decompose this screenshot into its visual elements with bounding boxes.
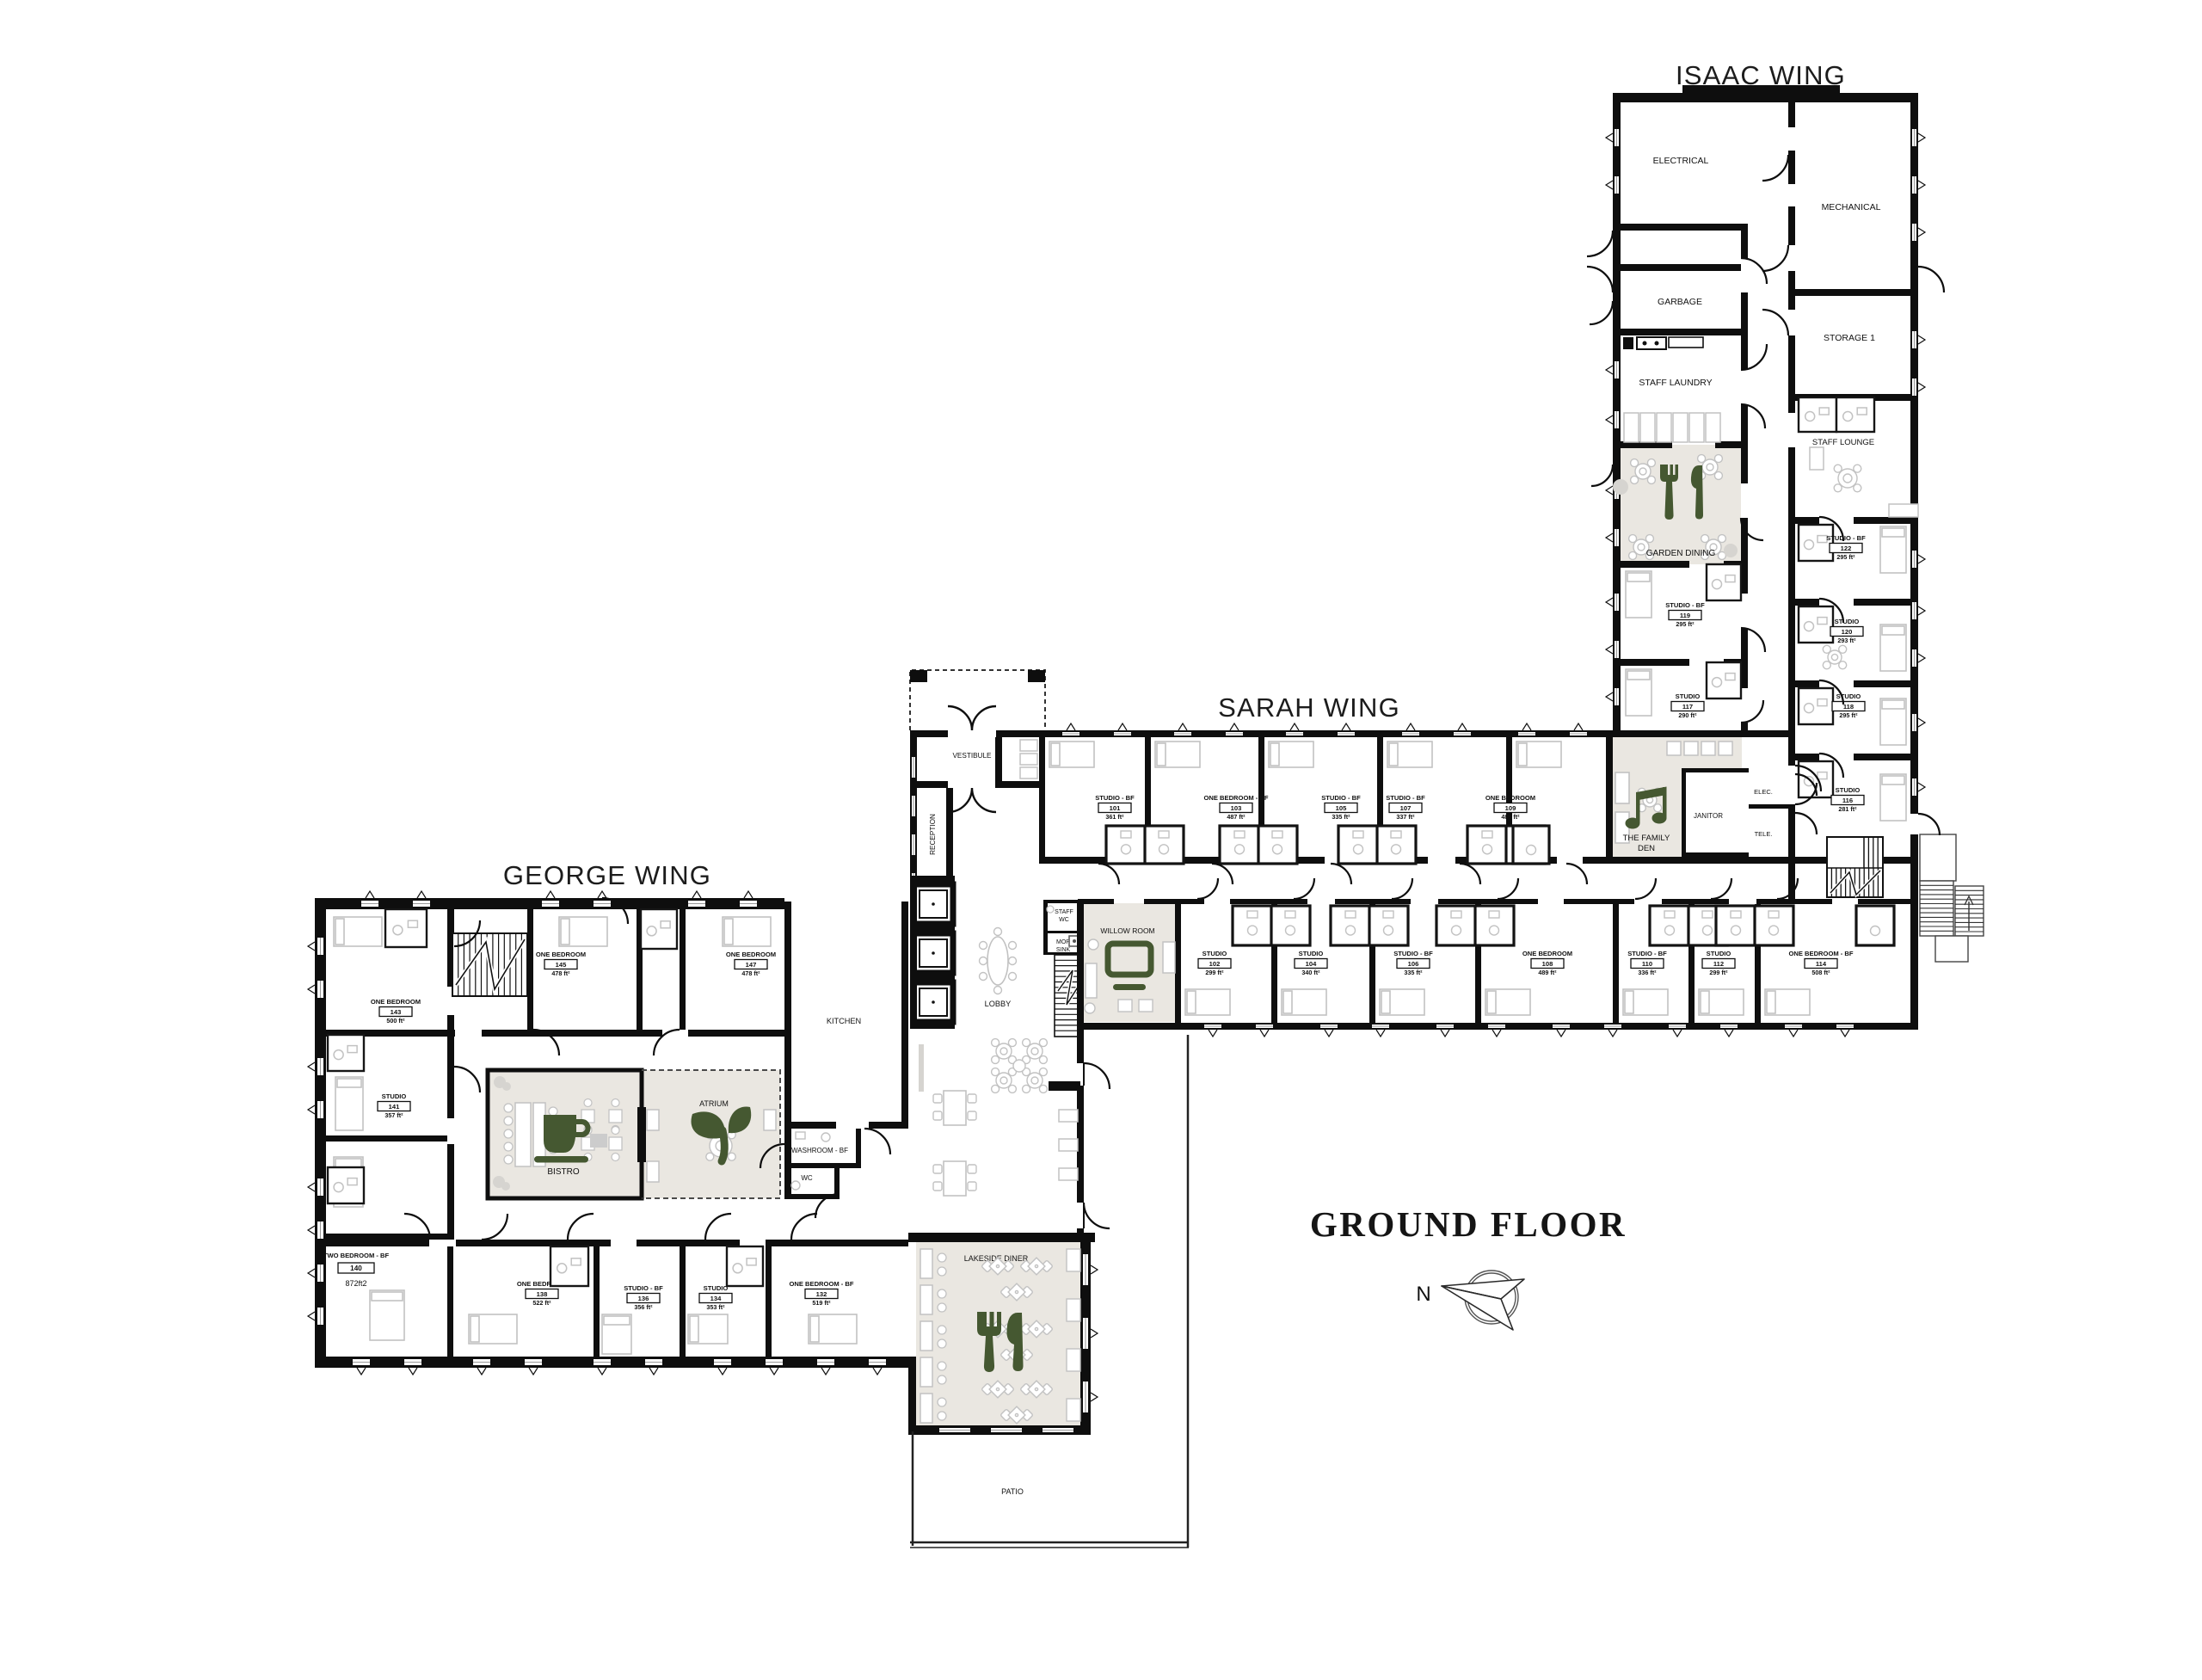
svg-text:STAFF LAUNDRY: STAFF LAUNDRY [1639,378,1712,388]
svg-text:508 ft²: 508 ft² [1811,969,1830,976]
svg-text:THE FAMILY: THE FAMILY [1623,834,1670,843]
svg-text:299 ft²: 299 ft² [1709,969,1728,976]
svg-text:LOBBY: LOBBY [985,1000,1012,1008]
svg-text:145: 145 [556,961,567,969]
svg-text:ELEC.: ELEC. [1754,788,1773,796]
svg-text:522 ft²: 522 ft² [532,1299,551,1307]
svg-text:STUDIO: STUDIO [1299,950,1324,957]
svg-text:478 ft²: 478 ft² [551,969,570,977]
svg-text:478 ft²: 478 ft² [741,969,760,977]
svg-text:101: 101 [1110,804,1121,812]
svg-text:SARAH WING: SARAH WING [1218,692,1400,723]
svg-text:108: 108 [1542,960,1553,968]
svg-text:295 ft²: 295 ft² [1839,711,1858,719]
svg-text:356 ft²: 356 ft² [634,1303,653,1311]
svg-text:STAFF LOUNGE: STAFF LOUNGE [1812,438,1874,447]
svg-text:STUDIO: STUDIO [704,1284,729,1292]
svg-text:299 ft²: 299 ft² [1205,969,1224,976]
svg-text:295 ft²: 295 ft² [1676,620,1695,628]
svg-text:STUDIO: STUDIO [382,1092,407,1100]
svg-text:STUDIO - BF: STUDIO - BF [1393,950,1433,957]
svg-text:489 ft²: 489 ft² [1538,969,1557,976]
svg-text:TELE.: TELE. [1755,830,1773,838]
svg-text:487 ft²: 487 ft² [1227,813,1246,821]
svg-text:353 ft²: 353 ft² [706,1303,725,1311]
svg-text:STAFF: STAFF [1055,909,1073,915]
svg-text:120: 120 [1842,628,1853,636]
svg-text:STUDIO - BF: STUDIO - BF [1095,794,1135,802]
svg-text:STUDIO: STUDIO [1707,950,1731,957]
svg-text:136: 136 [638,1295,649,1302]
svg-text:295 ft²: 295 ft² [1836,553,1855,561]
svg-text:ONE BEDROOM: ONE BEDROOM [726,951,776,958]
svg-text:STUDIO - BF: STUDIO - BF [1627,950,1667,957]
svg-text:872ft2: 872ft2 [345,1279,366,1288]
svg-text:STUDIO: STUDIO [1202,950,1227,957]
svg-text:293 ft²: 293 ft² [1837,637,1856,644]
svg-text:STUDIO: STUDIO [1836,786,1861,794]
svg-text:DEN: DEN [1638,844,1655,853]
svg-text:290 ft²: 290 ft² [1678,711,1697,719]
svg-text:STUDIO - BF: STUDIO - BF [1321,794,1361,802]
svg-text:118: 118 [1843,703,1854,711]
svg-text:ONE BEDROOM - BF: ONE BEDROOM - BF [1788,950,1853,957]
svg-text:112: 112 [1713,960,1724,968]
svg-text:KITCHEN: KITCHEN [827,1017,861,1025]
svg-text:116: 116 [1842,797,1853,804]
svg-text:SINK: SINK [1056,947,1071,953]
svg-text:GROUND FLOOR: GROUND FLOOR [1310,1204,1627,1244]
svg-text:109: 109 [1505,804,1516,812]
svg-text:335 ft²: 335 ft² [1404,969,1423,976]
svg-text:337 ft²: 337 ft² [1396,813,1415,821]
svg-text:114: 114 [1816,960,1827,968]
svg-text:357 ft²: 357 ft² [384,1111,403,1119]
svg-text:134: 134 [710,1295,722,1302]
svg-text:103: 103 [1231,804,1242,812]
svg-text:335 ft²: 335 ft² [1332,813,1350,821]
svg-text:122: 122 [1841,545,1852,552]
svg-text:ONE BEDROOM - BF: ONE BEDROOM - BF [789,1280,853,1288]
svg-text:STUDIO: STUDIO [1676,692,1701,700]
svg-text:STUDIO - BF: STUDIO - BF [1665,601,1705,609]
svg-text:STUDIO - BF: STUDIO - BF [1826,534,1866,542]
svg-text:JANITOR: JANITOR [1694,812,1723,820]
svg-text:STUDIO - BF: STUDIO - BF [624,1284,663,1292]
svg-text:119: 119 [1680,612,1690,619]
svg-text:N: N [1416,1283,1430,1306]
svg-text:141: 141 [389,1103,400,1111]
svg-text:ATRIUM: ATRIUM [699,1099,729,1108]
svg-text:WC: WC [1059,917,1069,923]
svg-text:WILLOW ROOM: WILLOW ROOM [1100,926,1154,935]
svg-text:106: 106 [1408,960,1419,968]
svg-text:RECEPTION: RECEPTION [929,814,937,855]
svg-text:ONE BEDROOM: ONE BEDROOM [1485,794,1535,802]
svg-text:102: 102 [1209,960,1221,968]
svg-text:138: 138 [537,1290,548,1298]
svg-text:VESTIBULE: VESTIBULE [952,752,992,760]
svg-text:TWO BEDROOM - BF: TWO BEDROOM - BF [323,1252,390,1259]
svg-text:143: 143 [391,1008,402,1016]
svg-text:ELECTRICAL: ELECTRICAL [1653,156,1709,166]
svg-text:104: 104 [1306,960,1317,968]
svg-text:500 ft²: 500 ft² [386,1017,405,1025]
svg-text:147: 147 [746,961,757,969]
svg-text:105: 105 [1336,804,1347,812]
svg-text:107: 107 [1400,804,1412,812]
svg-text:STORAGE 1: STORAGE 1 [1824,333,1875,343]
svg-text:GARDEN DINING: GARDEN DINING [1646,549,1716,558]
svg-text:336 ft²: 336 ft² [1638,969,1657,976]
svg-text:GARBAGE: GARBAGE [1658,297,1702,307]
svg-text:361 ft²: 361 ft² [1105,813,1124,821]
svg-text:ONE BEDROOM - BF: ONE BEDROOM - BF [1203,794,1268,802]
svg-text:MECHANICAL: MECHANICAL [1822,202,1881,212]
svg-text:281 ft²: 281 ft² [1838,805,1857,813]
svg-text:110: 110 [1642,960,1652,968]
svg-text:ONE BEDROOM: ONE BEDROOM [1522,950,1572,957]
svg-text:STUDIO: STUDIO [1835,618,1860,625]
svg-text:ONE BEDROOM: ONE BEDROOM [371,998,421,1006]
svg-text:ONE BEDROOM: ONE BEDROOM [536,951,586,958]
svg-text:BISTRO: BISTRO [547,1167,579,1177]
svg-text:PATIO: PATIO [1001,1487,1024,1496]
svg-text:140: 140 [350,1265,362,1272]
svg-text:WASHROOM - BF: WASHROOM - BF [791,1147,848,1154]
svg-text:STUDIO - BF: STUDIO - BF [1386,794,1425,802]
svg-text:GEORGE WING: GEORGE WING [503,860,711,890]
svg-text:132: 132 [816,1290,827,1298]
svg-text:340 ft²: 340 ft² [1301,969,1320,976]
svg-text:WC: WC [801,1174,813,1182]
svg-text:117: 117 [1682,703,1693,711]
svg-text:519 ft²: 519 ft² [812,1299,831,1307]
svg-text:MOP: MOP [1056,939,1070,945]
svg-text:489 ft²: 489 ft² [1501,813,1520,821]
